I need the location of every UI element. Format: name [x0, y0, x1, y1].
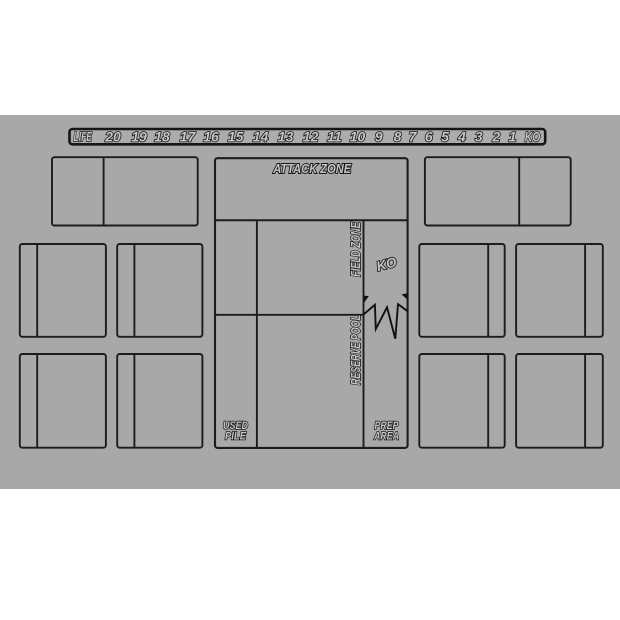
svg-text:17: 17 — [180, 129, 197, 145]
svg-text:12: 12 — [303, 129, 319, 145]
svg-text:20: 20 — [104, 129, 121, 145]
svg-text:2: 2 — [491, 129, 500, 145]
svg-text:5: 5 — [441, 129, 449, 145]
svg-text:14: 14 — [253, 129, 269, 145]
svg-text:6: 6 — [425, 129, 433, 145]
svg-text:1: 1 — [509, 129, 517, 145]
svg-text:13: 13 — [278, 129, 294, 145]
svg-text:3: 3 — [475, 129, 483, 145]
svg-text:4: 4 — [457, 129, 466, 145]
svg-text:LIFE: LIFE — [74, 130, 93, 144]
svg-text:RESERVE POOL: RESERVE POOL — [348, 315, 363, 385]
svg-text:15: 15 — [228, 129, 244, 145]
svg-text:7: 7 — [409, 129, 418, 145]
svg-text:KO: KO — [525, 129, 541, 145]
svg-text:11: 11 — [327, 129, 342, 145]
svg-text:9: 9 — [375, 129, 383, 145]
svg-text:10: 10 — [350, 129, 366, 145]
svg-text:8: 8 — [394, 129, 402, 145]
svg-text:FIELD ZONE: FIELD ZONE — [348, 222, 363, 277]
svg-text:16: 16 — [203, 129, 219, 145]
svg-text:ATTACK ZONE: ATTACK ZONE — [272, 162, 351, 176]
svg-text:PILE: PILE — [225, 431, 247, 443]
svg-text:18: 18 — [154, 129, 170, 145]
svg-text:AREA: AREA — [373, 431, 399, 443]
svg-text:19: 19 — [131, 129, 147, 145]
